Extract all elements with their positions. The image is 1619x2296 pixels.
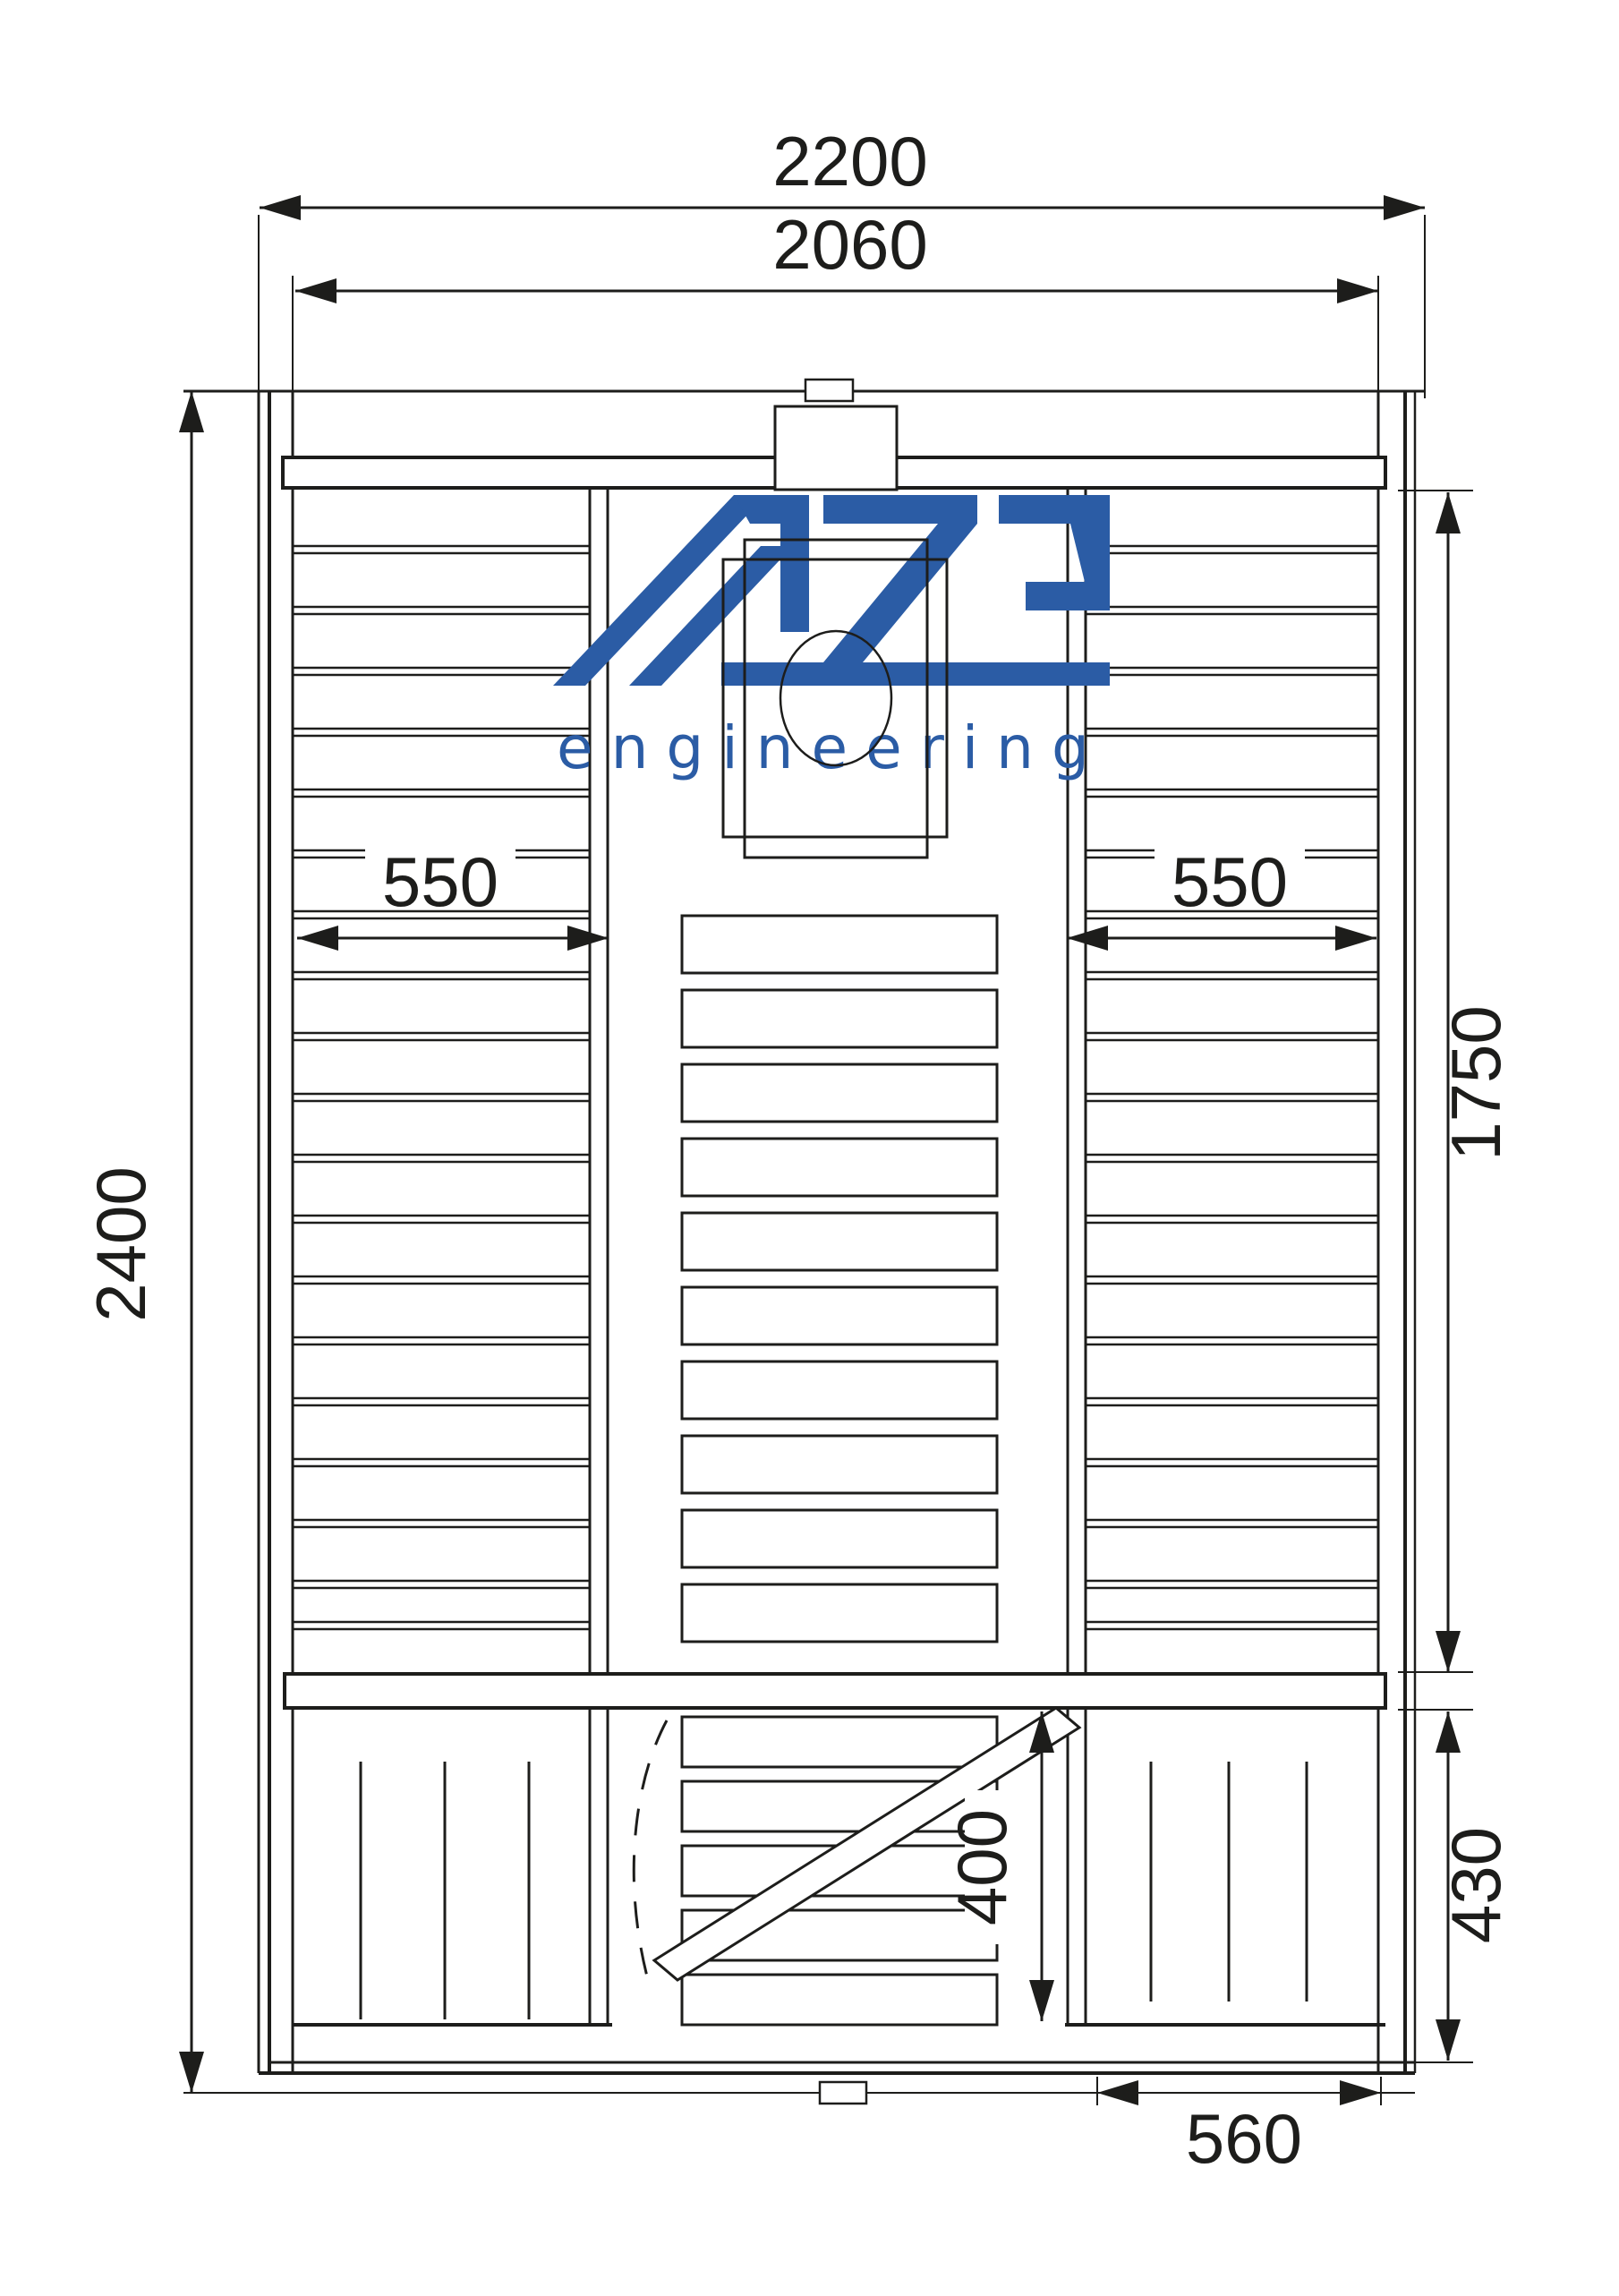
- left-bench-slats: [293, 546, 590, 1629]
- dim-430-label: 430: [1436, 1827, 1515, 1943]
- dim-550-left-label: 550: [382, 842, 498, 921]
- storage-box-right: [1065, 1762, 1385, 2025]
- sauna-plan-svg: engineering 2200 2060: [0, 0, 1619, 2292]
- drawing-canvas: engineering 2200 2060: [0, 0, 1619, 2292]
- dim-560-label: 560: [1186, 2099, 1302, 2178]
- board-rect: [682, 990, 997, 1047]
- chimney-vent-bottom: [820, 2082, 866, 2104]
- board-rect: [682, 1584, 997, 1642]
- board-rect: [682, 1436, 997, 1493]
- azs-logo: engineering: [553, 495, 1110, 782]
- storage-box-left: [293, 1762, 612, 2025]
- board-rect: [682, 1510, 997, 1567]
- dim-560: 560: [1097, 2077, 1381, 2178]
- bottom-bench-rail: [285, 1674, 1385, 1708]
- dim-2060: 2060: [295, 205, 1378, 303]
- board-rect: [682, 1975, 997, 2025]
- azs-logo-letters: [553, 495, 1110, 686]
- board-rect: [682, 1213, 997, 1270]
- right-bench-slats: [1086, 546, 1378, 1629]
- dim-2200-label: 2200: [772, 122, 928, 201]
- board-rect: [682, 1064, 997, 1122]
- board-rect: [682, 916, 997, 973]
- heater-duct: [775, 406, 897, 490]
- chimney-vent-top: [805, 380, 853, 401]
- dim-1750-label: 1750: [1436, 1005, 1515, 1161]
- board-rect: [682, 1361, 997, 1419]
- dim-2060-label: 2060: [772, 205, 928, 284]
- dim-550-right-label: 550: [1172, 842, 1288, 921]
- engineering-label: engineering: [557, 713, 1107, 782]
- board-rect: [682, 1139, 997, 1196]
- corridor-floor-boards: [682, 916, 997, 1642]
- door-swing-arc: [634, 1720, 667, 1976]
- dim-400-label: 400: [942, 1809, 1021, 1925]
- board-rect: [682, 1287, 997, 1344]
- dim-2400: 2400: [81, 391, 204, 2093]
- board-rect: [682, 1717, 997, 1767]
- dim-2400-label: 2400: [81, 1166, 160, 1322]
